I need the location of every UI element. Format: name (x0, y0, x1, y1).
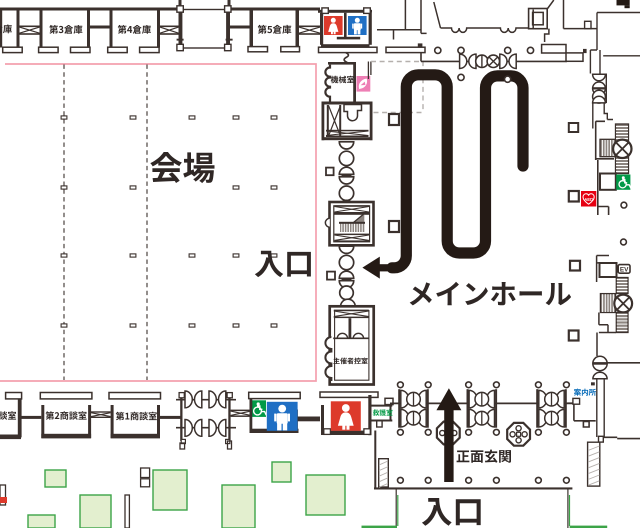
svg-text:EV: EV (620, 266, 629, 273)
svg-text:AED: AED (584, 197, 593, 202)
